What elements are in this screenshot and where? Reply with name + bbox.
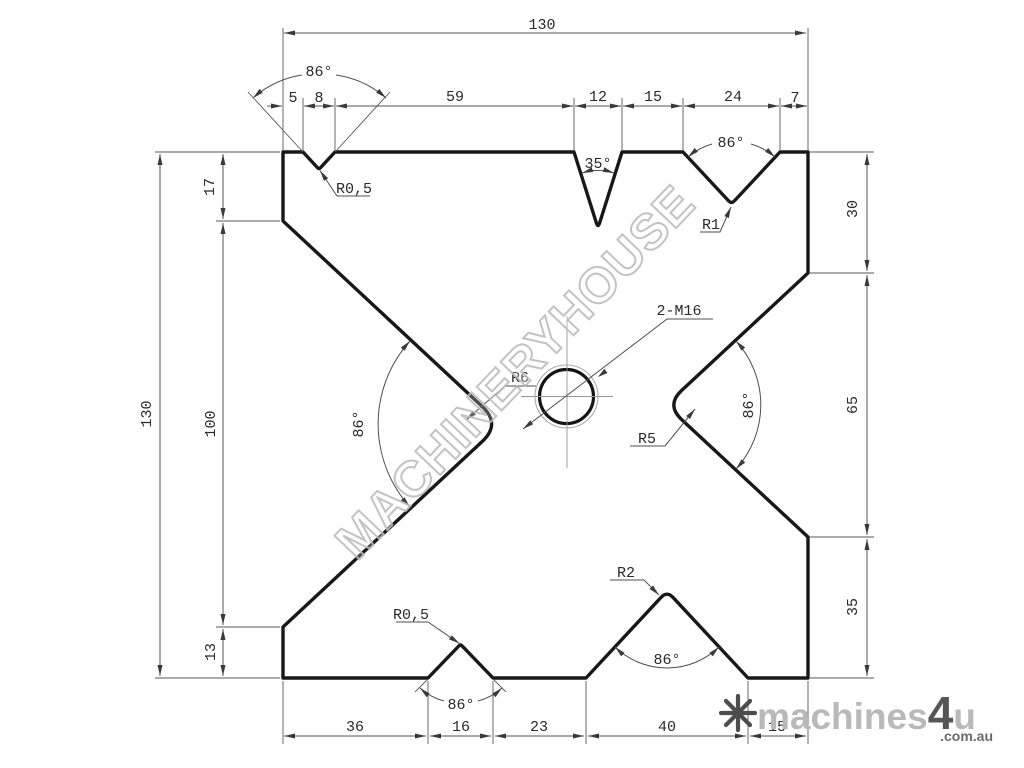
dim-top-15: 15 — [644, 89, 662, 106]
dim-top-overall: 130 — [528, 17, 555, 34]
hole-callout: 2-M16 — [656, 303, 701, 320]
dim-left-17: 17 — [202, 178, 219, 196]
angle-mid-left: 86° — [351, 410, 368, 437]
angle-top-center: 35° — [584, 156, 611, 173]
dim-top-7: 7 — [790, 90, 799, 107]
drawing-page: 130 5 8 59 12 15 24 7 130 17 100 13 30 6… — [0, 0, 1024, 768]
logo-domain: .com.au — [940, 728, 993, 744]
dim-bottom-23: 23 — [530, 719, 548, 736]
dim-top-8: 8 — [314, 90, 323, 107]
radius-mid-right: R5 — [638, 431, 656, 448]
dim-top-59: 59 — [446, 89, 464, 106]
angle-bottom-right: 86° — [653, 652, 680, 669]
dim-bottom-16: 16 — [452, 719, 470, 736]
machines4u-logo: machines4u .com.au — [721, 687, 993, 744]
dim-top-12: 12 — [589, 89, 607, 106]
engineering-drawing: 130 5 8 59 12 15 24 7 130 17 100 13 30 6… — [0, 0, 1024, 768]
dim-left-100: 100 — [203, 410, 220, 437]
dim-bottom-36: 36 — [346, 719, 364, 736]
dim-bottom-40: 40 — [658, 719, 676, 736]
dim-top-24: 24 — [724, 89, 742, 106]
angle-bottom-left: 86° — [447, 697, 474, 714]
radius-top-left: R0,5 — [336, 181, 372, 198]
dim-right-30: 30 — [845, 200, 862, 218]
radius-bottom-left: R0,5 — [393, 607, 429, 624]
radius-top-right: R1 — [702, 217, 720, 234]
dim-right-35: 35 — [845, 598, 862, 616]
logo-brand-light: machines — [757, 696, 928, 737]
star-icon — [721, 696, 755, 730]
dim-left-overall: 130 — [139, 400, 156, 427]
angle-mid-right: 86° — [741, 391, 758, 418]
angle-top-left: 86° — [305, 64, 332, 81]
radius-bottom-right: R2 — [617, 565, 635, 582]
dim-right-65: 65 — [845, 396, 862, 414]
dim-left-13: 13 — [203, 643, 220, 661]
dim-top-5: 5 — [288, 90, 297, 107]
angle-top-right: 86° — [717, 135, 744, 152]
